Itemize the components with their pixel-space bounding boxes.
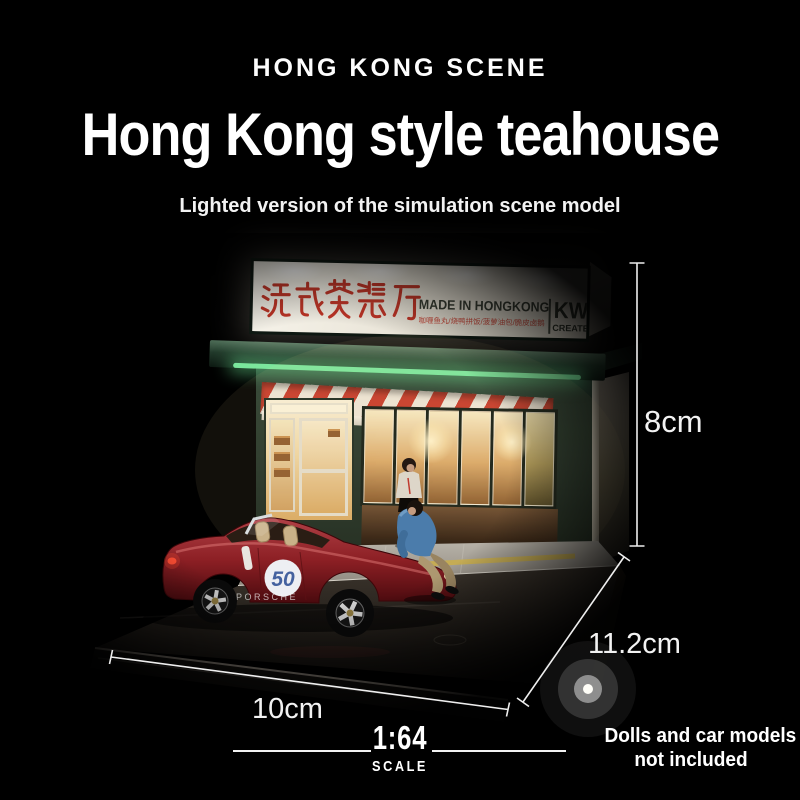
height-label: 8cm	[644, 404, 703, 440]
disclaimer: Dolls and car models not included	[598, 724, 784, 772]
disclaimer-line1: Dolls and car models	[605, 724, 778, 748]
product-poster: HONG KONG SCENE Hong Kong style teahouse…	[0, 0, 800, 800]
depth-label: 11.2cm	[588, 628, 681, 661]
page-title: Hong Kong style teahouse	[0, 100, 800, 169]
subtitle: Lighted version of the simulation scene …	[0, 195, 800, 218]
scale-ratio: 1:64	[373, 719, 428, 757]
disclaimer-line2: not included	[605, 748, 778, 772]
scale-badge: 1:64 SCALE	[330, 719, 470, 775]
height-dimension-line	[630, 263, 645, 546]
scale-word: SCALE	[341, 758, 460, 775]
page-title-text: Hong Kong style teahouse	[81, 100, 718, 169]
width-label: 10cm	[252, 693, 323, 726]
brand-line: HONG KONG SCENE	[0, 54, 800, 83]
